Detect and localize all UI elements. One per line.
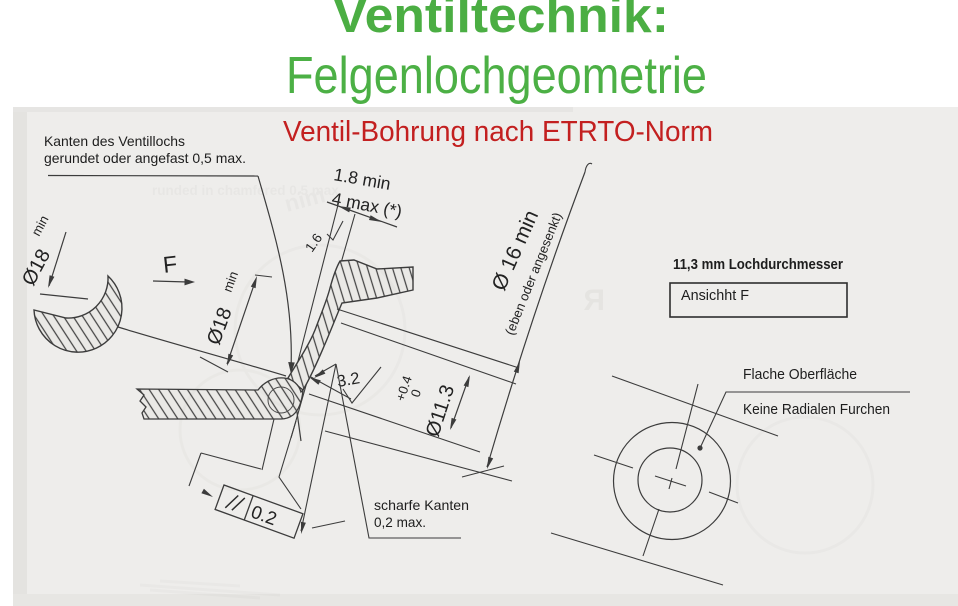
svg-text:R: R	[583, 284, 605, 317]
svg-text:0,2 max.: 0,2 max.	[374, 514, 426, 530]
svg-text:Ventil-Bohrung nach ETRTO-Norm: Ventil-Bohrung nach ETRTO-Norm	[283, 116, 713, 148]
svg-text:Keine Radialen Furchen: Keine Radialen Furchen	[743, 402, 890, 418]
svg-text:gerundet oder angefast 0,5 max: gerundet oder angefast 0,5 max.	[44, 150, 246, 166]
svg-text:Ansichht F: Ansichht F	[681, 287, 749, 304]
svg-text:Felgenlochgeometrie: Felgenlochgeometrie	[286, 47, 707, 105]
svg-text:11,3 mm Lochdurchmesser: 11,3 mm Lochdurchmesser	[673, 257, 843, 273]
svg-text:F: F	[162, 251, 179, 278]
svg-text:Flache Oberfläche: Flache Oberfläche	[743, 367, 857, 383]
svg-text:Kanten des Ventillochs: Kanten des Ventillochs	[44, 133, 185, 149]
svg-text:scharfe Kanten: scharfe Kanten	[374, 497, 469, 513]
svg-text:Ventiltechnik:: Ventiltechnik:	[333, 0, 669, 43]
